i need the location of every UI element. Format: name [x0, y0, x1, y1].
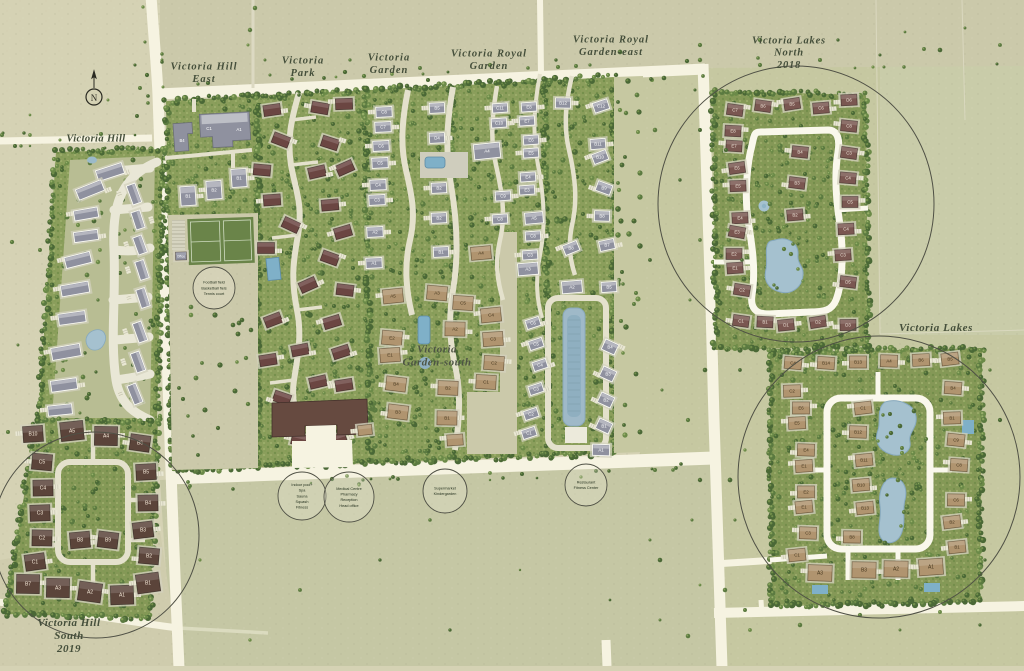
svg-text:B5: B5: [606, 285, 612, 290]
svg-text:B8: B8: [77, 538, 83, 544]
svg-text:E3: E3: [734, 230, 740, 235]
svg-text:C6: C6: [818, 106, 824, 111]
svg-text:South: South: [54, 630, 83, 642]
svg-text:B1: B1: [954, 545, 960, 550]
svg-text:Fitness Center: Fitness Center: [574, 486, 599, 490]
svg-text:B3: B3: [140, 528, 146, 534]
svg-text:Victoria Hill: Victoria Hill: [37, 617, 100, 629]
svg-text:E5: E5: [735, 184, 741, 189]
svg-text:C8: C8: [956, 463, 962, 468]
svg-text:C3: C3: [846, 151, 852, 156]
svg-text:C8: C8: [497, 217, 503, 222]
svg-text:A4: A4: [484, 149, 490, 154]
svg-text:Victoria Lakes: Victoria Lakes: [899, 322, 973, 334]
svg-text:Reception: Reception: [340, 498, 357, 502]
svg-text:C1: C1: [206, 126, 212, 131]
svg-text:Victoria: Victoria: [282, 56, 324, 67]
svg-text:Pharmacy: Pharmacy: [340, 493, 357, 497]
svg-text:C1: C1: [738, 319, 744, 324]
svg-text:E1: E1: [732, 266, 738, 271]
svg-text:C3: C3: [840, 253, 846, 258]
svg-text:Sauna: Sauna: [297, 494, 309, 498]
svg-text:B10: B10: [29, 432, 38, 438]
svg-text:B3: B3: [861, 568, 867, 574]
svg-text:B1: B1: [444, 416, 450, 421]
svg-text:North: North: [773, 48, 804, 59]
svg-text:B2: B2: [603, 398, 609, 403]
svg-text:A1: A1: [119, 593, 125, 599]
svg-text:A1: A1: [928, 565, 934, 571]
svg-text:B2: B2: [792, 213, 798, 218]
svg-text:C6: C6: [530, 321, 536, 326]
svg-text:Spa: Spa: [299, 489, 307, 493]
svg-text:A2: A2: [87, 590, 93, 596]
svg-text:B2: B2: [949, 520, 955, 525]
svg-text:B1: B1: [145, 581, 151, 587]
svg-text:C10: C10: [495, 121, 504, 126]
svg-text:A4: A4: [103, 434, 109, 440]
svg-text:B14: B14: [822, 361, 830, 366]
svg-text:C5: C5: [39, 460, 46, 466]
svg-text:E1: E1: [387, 353, 393, 358]
svg-text:C8: C8: [530, 234, 536, 239]
svg-text:C6: C6: [378, 144, 384, 149]
svg-text:Supermarket: Supermarket: [434, 487, 457, 491]
svg-text:E4: E4: [525, 175, 531, 180]
svg-text:B4: B4: [179, 138, 185, 143]
svg-text:Victoria: Victoria: [417, 343, 457, 355]
svg-text:C1: C1: [860, 406, 866, 411]
svg-text:A2: A2: [372, 230, 378, 235]
svg-text:E1: E1: [801, 505, 807, 510]
svg-text:E5: E5: [528, 151, 534, 156]
svg-text:B12: B12: [559, 101, 567, 106]
svg-text:C3: C3: [490, 337, 496, 342]
svg-text:E3: E3: [524, 188, 530, 193]
svg-text:B4: B4: [393, 382, 399, 387]
svg-text:A5: A5: [390, 294, 396, 299]
svg-text:E2: E2: [389, 336, 395, 341]
svg-text:B6: B6: [760, 104, 766, 109]
svg-text:A3: A3: [55, 586, 61, 592]
svg-text:D3: D3: [845, 323, 851, 328]
svg-text:Victoria Hill: Victoria Hill: [66, 134, 125, 145]
svg-text:2019: 2019: [56, 643, 81, 655]
svg-text:B1: B1: [949, 416, 955, 421]
svg-text:B2: B2: [445, 386, 451, 391]
svg-text:C11: C11: [496, 106, 504, 111]
svg-text:East: East: [191, 74, 215, 85]
svg-text:B10: B10: [857, 483, 865, 488]
svg-text:Garden-south: Garden-south: [403, 356, 472, 368]
svg-text:C3: C3: [374, 198, 380, 203]
svg-text:C2: C2: [528, 412, 534, 417]
svg-text:C3: C3: [805, 531, 811, 536]
svg-text:B1: B1: [762, 320, 768, 325]
svg-text:B7: B7: [604, 243, 610, 248]
svg-text:E4: E4: [803, 448, 809, 453]
svg-text:B4: B4: [607, 345, 613, 350]
svg-text:B3: B3: [605, 372, 611, 377]
svg-text:D6: D6: [846, 98, 852, 103]
svg-text:2018: 2018: [776, 60, 801, 71]
svg-text:A2: A2: [452, 327, 458, 332]
svg-text:C2: C2: [739, 288, 745, 293]
svg-text:B4: B4: [950, 386, 956, 391]
svg-text:C7: C7: [380, 125, 386, 130]
svg-text:C3: C3: [527, 253, 533, 258]
svg-text:B13: B13: [854, 360, 862, 365]
svg-text:C5: C5: [460, 301, 466, 306]
svg-text:Garden: Garden: [370, 65, 409, 76]
svg-text:B11: B11: [594, 142, 602, 147]
svg-text:C5: C5: [847, 200, 853, 205]
svg-text:B5: B5: [434, 106, 440, 111]
svg-text:B6: B6: [918, 358, 924, 363]
svg-text:A3: A3: [434, 291, 440, 296]
svg-text:A3: A3: [525, 267, 531, 272]
svg-text:B2: B2: [146, 554, 152, 560]
svg-text:Tennis court: Tennis court: [204, 292, 225, 296]
svg-text:Squash: Squash: [296, 500, 309, 504]
svg-text:B7: B7: [25, 582, 31, 588]
svg-text:C4: C4: [537, 363, 543, 368]
svg-text:Kindergarden: Kindergarden: [434, 492, 457, 496]
svg-text:C4: C4: [375, 183, 381, 188]
svg-text:A4: A4: [478, 251, 484, 256]
svg-text:A1: A1: [371, 261, 377, 266]
svg-text:C2: C2: [789, 389, 795, 394]
svg-text:C5: C5: [533, 342, 539, 347]
svg-text:C4: C4: [843, 227, 849, 232]
svg-text:B5: B5: [947, 357, 953, 362]
svg-text:C3: C3: [533, 387, 539, 392]
svg-text:B10: B10: [596, 155, 604, 160]
svg-text:C9: C9: [500, 194, 506, 199]
svg-text:D5: D5: [845, 280, 851, 285]
svg-text:B1: B1: [601, 424, 607, 429]
svg-text:B2: B2: [211, 188, 217, 193]
svg-text:A2: A2: [893, 567, 899, 573]
svg-text:C3: C3: [37, 511, 44, 517]
svg-text:Head office: Head office: [339, 504, 358, 508]
svg-text:B8: B8: [849, 535, 855, 540]
svg-text:E6: E6: [734, 166, 740, 171]
svg-text:C2: C2: [39, 536, 46, 542]
svg-text:B13: B13: [861, 506, 869, 511]
svg-text:B8: B8: [599, 214, 605, 219]
svg-text:B2: B2: [436, 216, 442, 221]
svg-text:A4: A4: [886, 359, 892, 364]
svg-text:C9: C9: [953, 438, 959, 443]
svg-text:C12: C12: [597, 104, 606, 109]
svg-text:Park: Park: [291, 68, 316, 79]
svg-text:C1: C1: [794, 553, 800, 558]
svg-text:B1: B1: [185, 194, 191, 199]
svg-text:Indoor pool+: Indoor pool+: [291, 483, 313, 487]
svg-text:B2: B2: [436, 186, 442, 191]
svg-text:N: N: [91, 93, 98, 103]
svg-text:C1: C1: [526, 431, 532, 436]
svg-text:A1: A1: [236, 127, 242, 132]
svg-text:E7: E7: [731, 144, 737, 149]
svg-text:Victoria Royal: Victoria Royal: [451, 49, 527, 60]
svg-text:A5: A5: [531, 216, 537, 221]
svg-text:Football field: Football field: [203, 281, 225, 285]
svg-text:D4: D4: [434, 136, 440, 141]
svg-text:E6: E6: [798, 406, 804, 411]
svg-text:C7: C7: [732, 108, 738, 113]
svg-text:Office: Office: [177, 255, 185, 259]
svg-text:Victoria Royal: Victoria Royal: [573, 35, 649, 46]
svg-text:Garden-east: Garden-east: [579, 47, 643, 58]
svg-text:Basketball fiels: Basketball fiels: [201, 286, 226, 290]
svg-text:B11: B11: [860, 458, 868, 463]
svg-text:A3: A3: [817, 571, 823, 577]
svg-text:C8: C8: [381, 110, 387, 115]
svg-text:Fitness: Fitness: [296, 506, 308, 510]
svg-text:D2: D2: [815, 320, 821, 325]
svg-text:Victoria: Victoria: [368, 53, 410, 64]
svg-text:C6: C6: [953, 498, 959, 503]
svg-text:E5: E5: [794, 421, 800, 426]
svg-text:B4: B4: [145, 501, 151, 507]
svg-text:Victoria Hill: Victoria Hill: [171, 62, 238, 73]
svg-text:A2: A2: [569, 285, 575, 290]
svg-text:C5: C5: [377, 161, 383, 166]
svg-text:B4: B4: [797, 150, 803, 155]
svg-text:E2: E2: [803, 490, 809, 495]
svg-text:C1: C1: [32, 560, 39, 566]
svg-text:B12: B12: [854, 430, 862, 435]
svg-text:C4: C4: [40, 486, 47, 492]
svg-text:E2: E2: [731, 252, 737, 257]
svg-text:Victoria Lakes: Victoria Lakes: [752, 35, 826, 46]
svg-text:B5: B5: [143, 470, 149, 476]
svg-text:E4: E4: [737, 216, 743, 221]
svg-text:Restaurant: Restaurant: [577, 481, 597, 485]
svg-text:B1: B1: [438, 250, 444, 255]
svg-text:C4: C4: [845, 176, 851, 181]
svg-text:A1: A1: [598, 448, 604, 453]
svg-text:D1: D1: [783, 323, 789, 328]
svg-text:E8: E8: [526, 105, 532, 110]
svg-text:B8: B8: [568, 246, 574, 251]
svg-text:B5: B5: [789, 102, 795, 107]
svg-text:A5: A5: [69, 429, 75, 435]
svg-text:E6: E6: [528, 138, 534, 143]
svg-text:B9: B9: [105, 538, 111, 544]
svg-text:C1: C1: [483, 380, 489, 385]
svg-text:B9: B9: [601, 186, 607, 191]
svg-text:C2: C2: [491, 361, 497, 366]
svg-text:E8: E8: [730, 129, 736, 134]
svg-text:C4: C4: [488, 313, 494, 318]
svg-text:Garden: Garden: [470, 61, 509, 72]
svg-text:E1: E1: [801, 464, 807, 469]
svg-text:B1: B1: [236, 176, 242, 181]
svg-text:Medical Centre: Medical Centre: [336, 487, 362, 491]
svg-text:B3: B3: [794, 181, 800, 186]
svg-text:C8: C8: [846, 124, 852, 129]
svg-text:E7: E7: [524, 119, 530, 124]
svg-text:B3: B3: [395, 410, 401, 415]
